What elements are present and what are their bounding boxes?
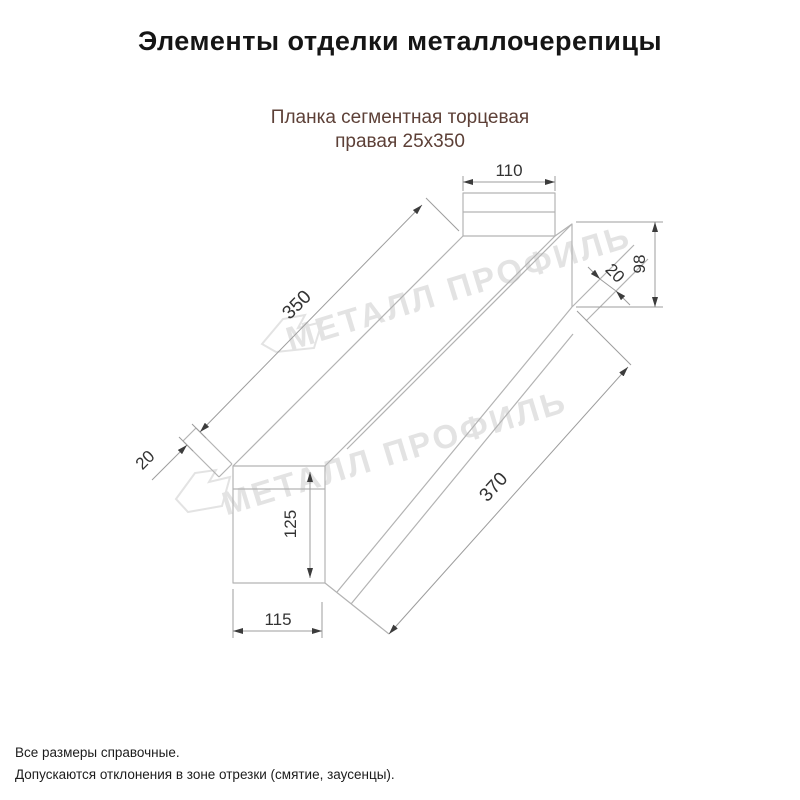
watermark-layer: МЕТАЛЛ ПРОФИЛЬ МЕТАЛЛ ПРОФИЛЬ bbox=[176, 217, 636, 522]
note-line2: Допускаются отклонения в зоне отрезки (с… bbox=[15, 764, 395, 786]
watermark-text: МЕТАЛЛ ПРОФИЛЬ bbox=[218, 382, 572, 522]
dim-label-left-height: 125 bbox=[281, 510, 300, 538]
notes-block: Все размеры справочные. Допускаются откл… bbox=[15, 742, 395, 786]
watermark-text: МЕТАЛЛ ПРОФИЛЬ bbox=[282, 217, 636, 357]
spec-sheet-page: Элементы отделки металлочерепицы Планка … bbox=[0, 0, 800, 800]
dim-label-bottom-width: 115 bbox=[264, 610, 291, 629]
note-line1: Все размеры справочные. bbox=[15, 742, 395, 764]
dim-label-right-height: 98 bbox=[630, 255, 649, 274]
dim-label-face-length: 370 bbox=[476, 469, 513, 507]
dim-label-hem-left: 20 bbox=[132, 447, 159, 474]
technical-drawing-svg: МЕТАЛЛ ПРОФИЛЬ МЕТАЛЛ ПРОФИЛЬ bbox=[0, 0, 800, 800]
dim-label-top-width: 110 bbox=[495, 161, 522, 180]
